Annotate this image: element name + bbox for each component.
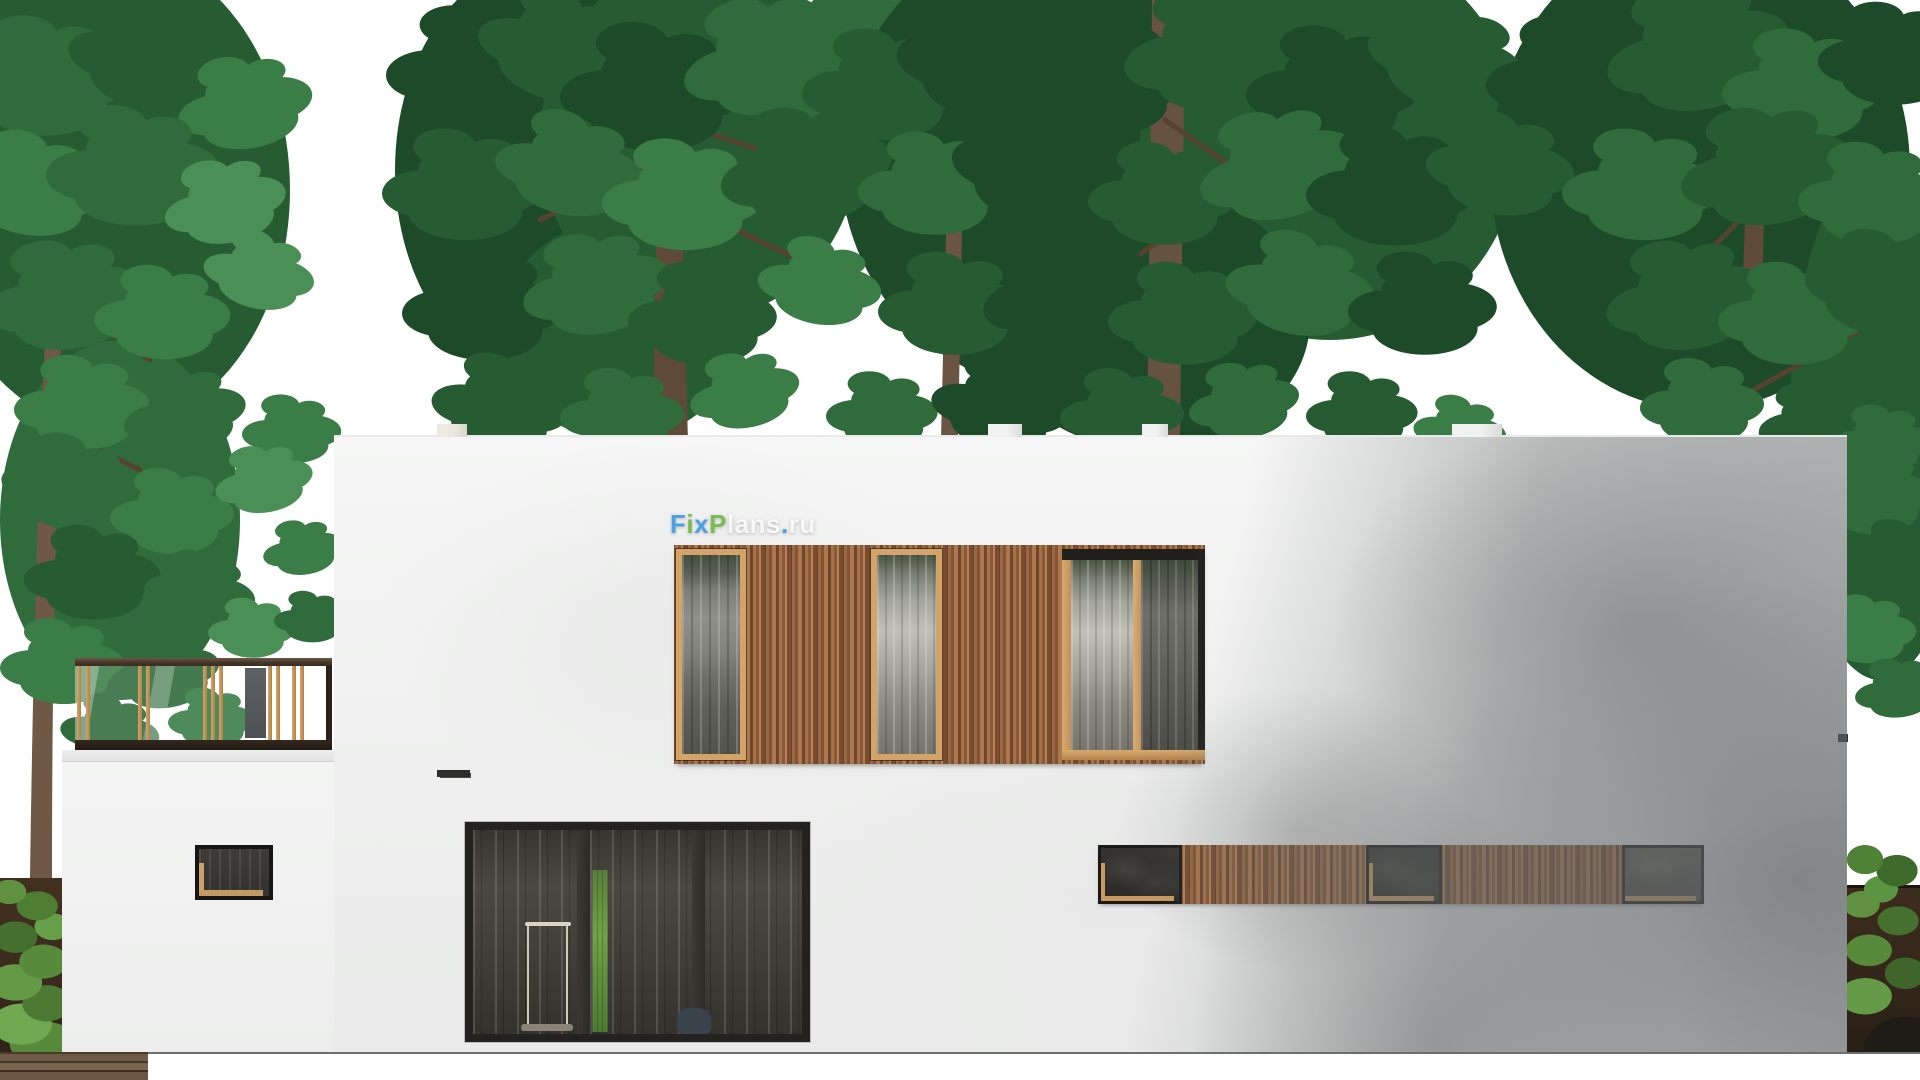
lower-window-right — [1622, 845, 1704, 904]
wood-sill — [1369, 896, 1434, 901]
small-window — [195, 845, 273, 900]
lower-window-left — [1098, 845, 1182, 904]
interior-greenery-view — [592, 870, 608, 1032]
watermark-letter: . — [781, 509, 789, 539]
roof-vent — [1142, 424, 1168, 437]
wood-sill — [1062, 750, 1205, 760]
railing-base-rail — [75, 740, 332, 750]
lower-window-middle — [1366, 845, 1442, 904]
upper-window-left — [676, 549, 746, 760]
door-mullion — [577, 830, 590, 1034]
roof-slab-edge — [62, 750, 334, 762]
railing-post — [276, 666, 280, 740]
watermark-letter: x — [694, 509, 709, 539]
window-glass — [682, 555, 740, 754]
balcony-railing — [75, 658, 332, 750]
window-glass — [877, 555, 936, 754]
window-frame-edge — [1198, 549, 1205, 750]
wood-sill — [199, 890, 263, 896]
window-glass — [199, 849, 269, 896]
roof-vent — [1452, 424, 1502, 437]
house-facade — [334, 435, 1847, 1052]
privacy-panel — [245, 668, 266, 738]
railing-post — [211, 666, 215, 740]
left-wing-wall — [62, 750, 334, 1052]
railing-post — [268, 666, 272, 740]
upper-wood-cladding-band — [674, 545, 1205, 764]
architectural-render-scene: FixPlans.ru — [0, 0, 1920, 1080]
door-glass-panel — [473, 830, 577, 1034]
wall-vent — [437, 770, 470, 777]
garden-fence-left — [0, 878, 62, 1052]
railing-handrail — [75, 658, 332, 666]
watermark-letter: F — [670, 509, 686, 539]
wood-jamb — [1062, 560, 1071, 750]
lower-wood-cladding-band — [1098, 845, 1704, 904]
window-glass — [1101, 848, 1179, 901]
upper-window-right — [1062, 549, 1205, 760]
door-glass-panel — [702, 830, 802, 1034]
railing-post — [292, 666, 296, 740]
interior-object — [677, 1008, 711, 1034]
watermark-letters: lans — [727, 509, 781, 539]
railing-end-post — [326, 666, 332, 740]
sliding-glass-door — [465, 822, 810, 1042]
interior-rack-base — [521, 1024, 573, 1031]
railing-post — [219, 666, 223, 740]
interior-rack-leg — [527, 926, 529, 1026]
interior-rack — [525, 922, 571, 926]
garden-fence-right — [1847, 885, 1920, 1052]
upper-window-middle — [871, 549, 942, 760]
watermark-letter: i — [686, 509, 694, 539]
window-glass — [1625, 848, 1701, 901]
garden-steps — [0, 1052, 148, 1080]
railing-post — [77, 666, 81, 740]
wood-mullion — [1133, 560, 1141, 750]
railing-post — [300, 666, 304, 740]
wood-sill — [1101, 896, 1174, 901]
railing-post — [146, 666, 150, 740]
roof-vent — [437, 424, 467, 437]
brick-pavement — [0, 1052, 1920, 1080]
wood-sill — [1625, 896, 1696, 901]
railing-post — [86, 666, 90, 740]
window-glass — [1369, 848, 1439, 901]
watermark-letter: P — [709, 509, 727, 539]
interior-rack-leg — [566, 926, 568, 1026]
watermark: FixPlans.ru — [670, 509, 816, 539]
railing-post — [203, 666, 207, 740]
door-mullion — [692, 830, 705, 1034]
roof-vent — [988, 424, 1022, 437]
railing-post — [138, 666, 142, 740]
window-glass — [1071, 560, 1133, 750]
wall-scupper — [1838, 734, 1848, 742]
watermark-letters: ru — [789, 509, 816, 539]
window-recess-header — [1062, 549, 1205, 560]
window-glass — [1141, 560, 1198, 750]
